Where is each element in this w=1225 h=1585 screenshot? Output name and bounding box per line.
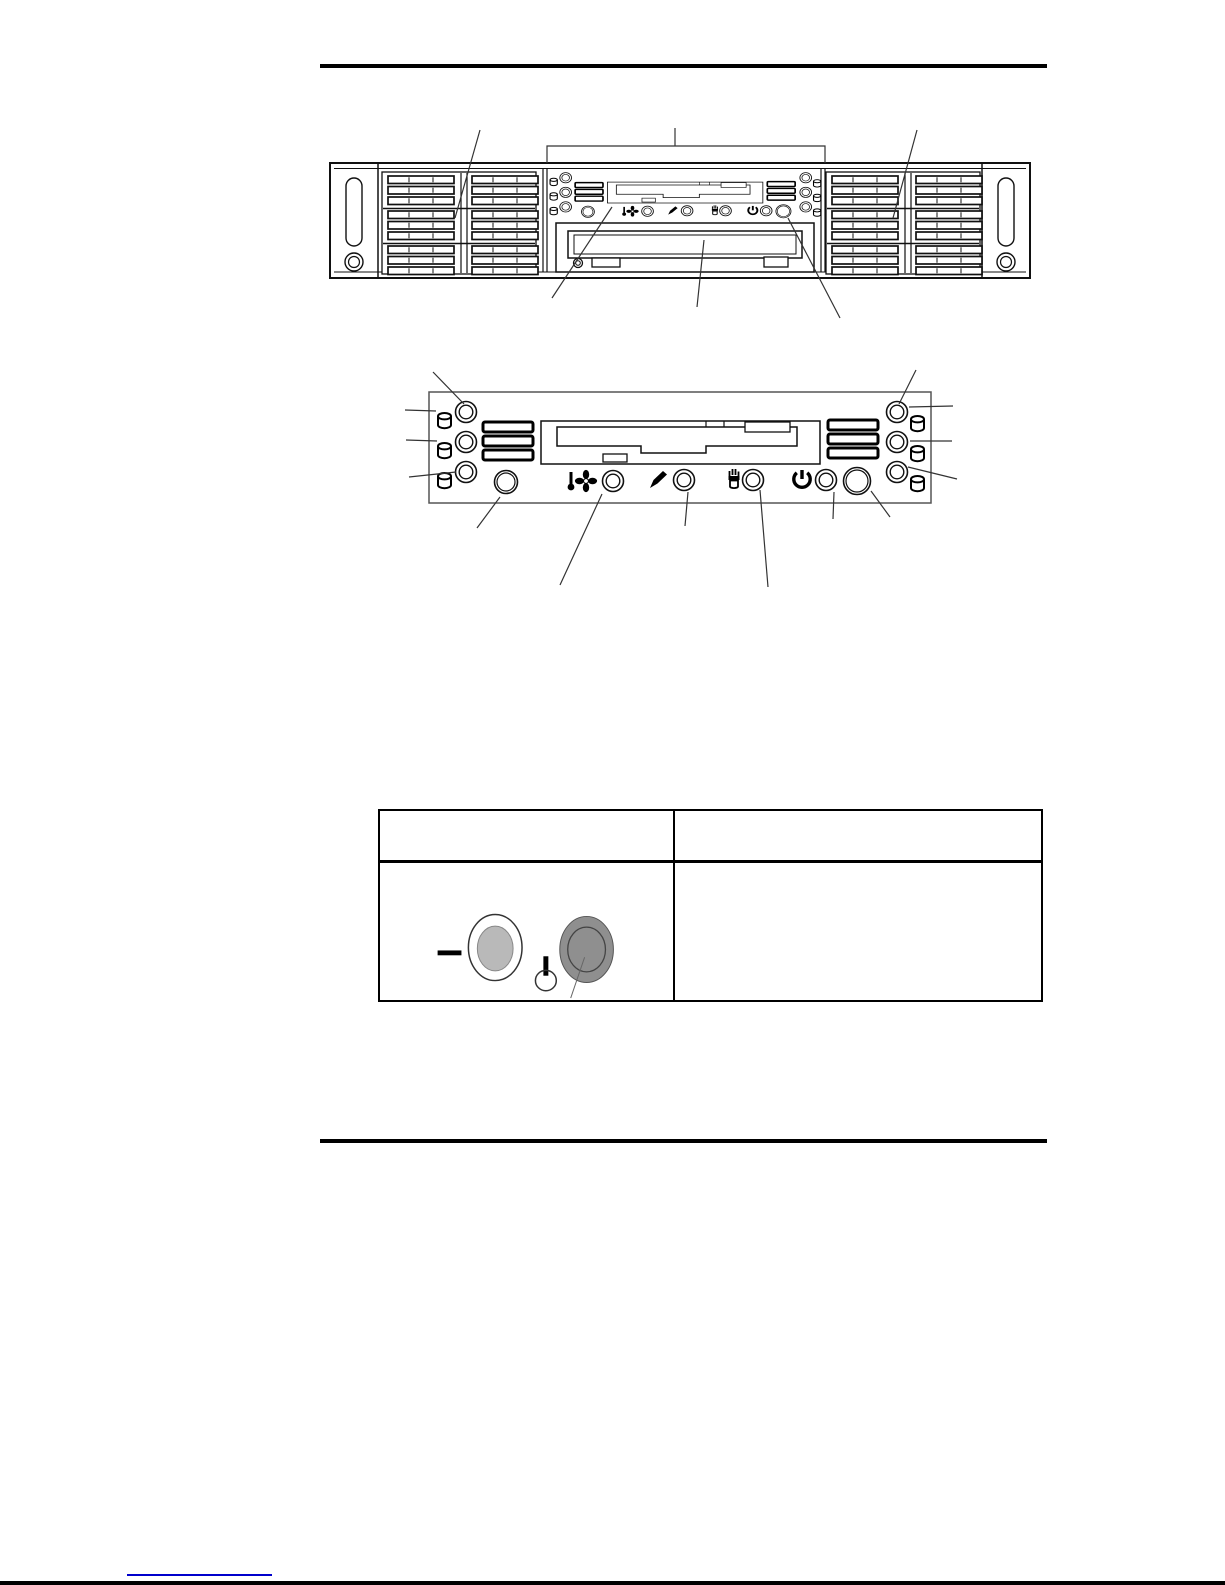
table-header-description (675, 811, 1041, 860)
dash-mark (438, 950, 462, 955)
table-body-row (380, 863, 1041, 1000)
power-on-symbol (535, 956, 556, 990)
secondary-power-button (468, 914, 522, 980)
manual-page (0, 0, 1225, 1585)
table-header-control (380, 811, 675, 860)
right-drive-bays (826, 172, 982, 275)
power-buttons-illustration (380, 863, 673, 1000)
table-header-row (380, 811, 1041, 863)
table-cell-control-illustration (380, 863, 675, 1000)
footer-link[interactable] (127, 1563, 272, 1576)
control-panel-bracket (547, 146, 825, 163)
figure-server-front-view (320, 120, 1045, 325)
figure-control-panel-detail (395, 362, 970, 595)
header-rule (320, 64, 1047, 68)
page-bottom-edge (0, 1581, 1225, 1585)
control-description-table (378, 809, 1043, 1002)
left-drive-bays (382, 172, 538, 275)
table-cell-description (675, 863, 1041, 1000)
footer-rule (320, 1139, 1047, 1143)
main-power-button (560, 916, 614, 982)
cd-rom-drive (556, 223, 814, 272)
